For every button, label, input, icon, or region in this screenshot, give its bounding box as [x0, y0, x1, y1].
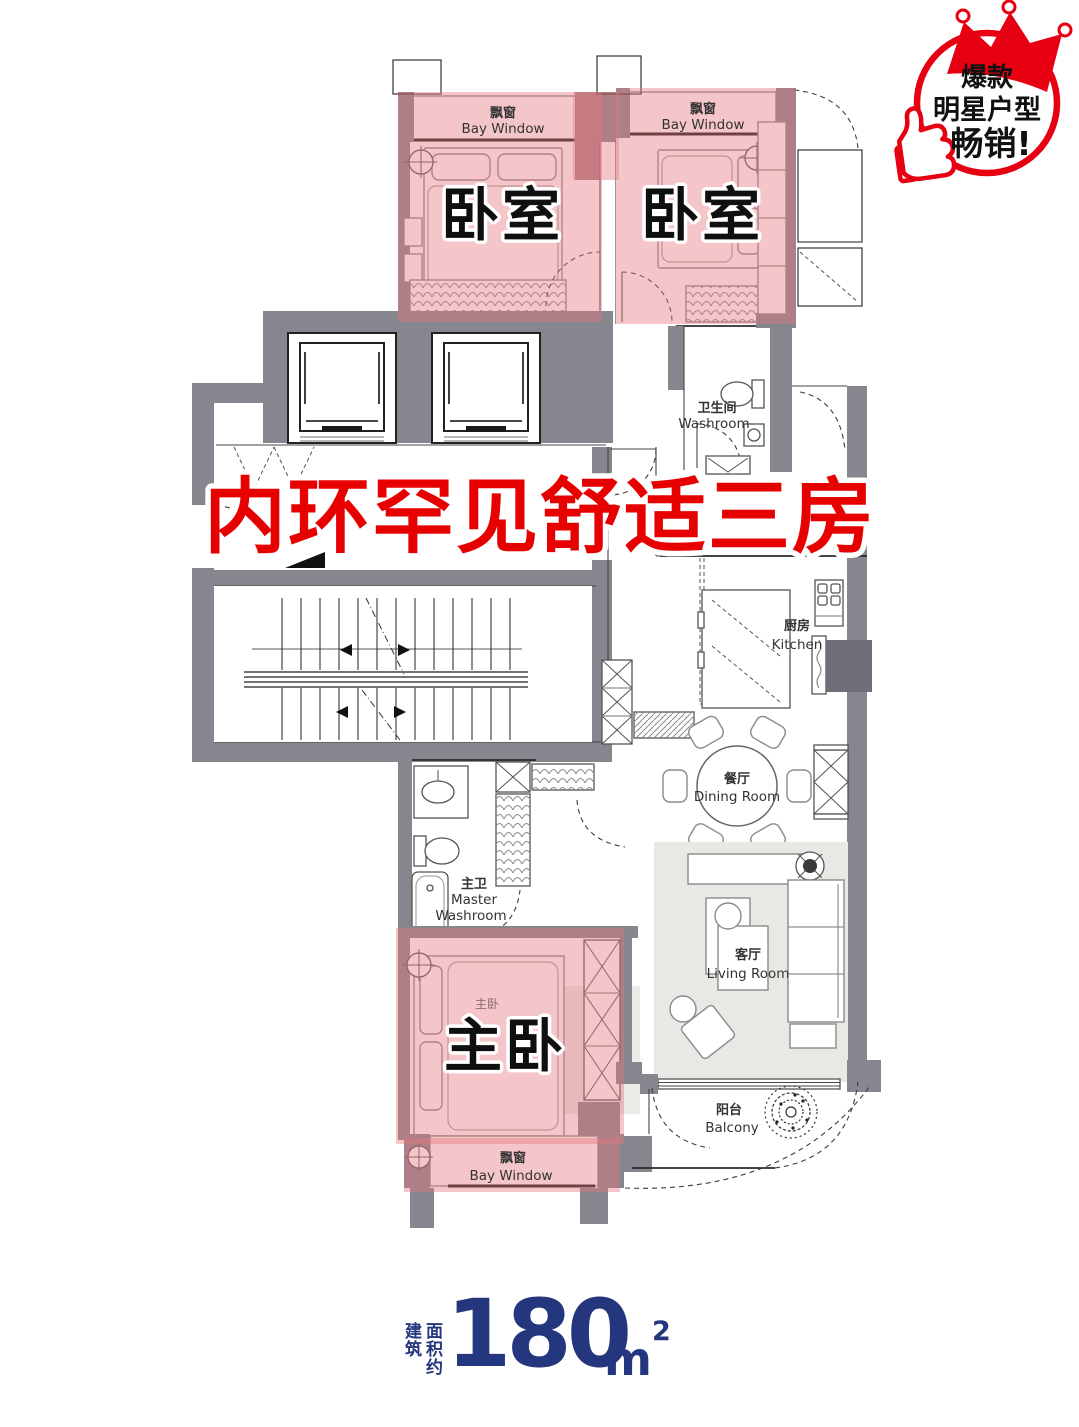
master-washroom-label-cn: 主卫 — [461, 876, 487, 892]
balcony-label-en: Balcony — [705, 1120, 759, 1136]
dining-room-label-en: Dining Room — [694, 789, 780, 805]
bedroom-right-title: 卧室 — [641, 181, 763, 249]
stove-icon — [815, 580, 843, 626]
dining-room-label-cn: 餐厅 — [723, 771, 750, 787]
bay-window-top-right-label-en: Bay Window — [661, 117, 744, 133]
bedroom-left-title: 卧室 — [441, 181, 563, 249]
master-washroom-label-en2: Washroom — [435, 908, 506, 924]
bay-window-bottom-label-cn: 飘窗 — [500, 1150, 526, 1166]
sideboard-icon — [814, 745, 848, 819]
stairs-icon — [214, 586, 592, 742]
badge-line3: 畅销! — [950, 124, 1031, 163]
master-bedroom-plan-label: 主卧 — [475, 997, 499, 1011]
washroom-label-en: Washroom — [678, 416, 749, 432]
tv-bench-icon — [688, 854, 804, 884]
master-bedroom-title: 主卧 — [444, 1012, 566, 1080]
elevator-2-icon — [432, 333, 540, 443]
bay-window-top-left-label-en: Bay Window — [461, 121, 544, 137]
plant-icon — [796, 852, 824, 880]
shoe-cabinet-icon — [602, 660, 632, 744]
living-room-label-en: Living Room — [707, 966, 790, 982]
balcony-label-cn: 阳台 — [716, 1102, 742, 1118]
elevator-1-icon — [288, 333, 396, 443]
coat-mat-icon — [634, 712, 694, 738]
bay-window-top-right-label-cn: 飘窗 — [690, 101, 716, 117]
bay-window-top-left-label-cn: 飘窗 — [490, 105, 516, 121]
headline-text: 内环罕见舒适三房 — [204, 470, 876, 565]
area-unit: m — [604, 1332, 652, 1386]
bay-window-bottom-label-en: Bay Window — [469, 1168, 552, 1184]
vanity-icon — [414, 766, 468, 818]
master-washroom-label-en1: Master — [451, 892, 498, 908]
area-prefix-col2: 面积约 — [423, 1322, 441, 1376]
floor-plan: 飘窗 Bay Window 飘窗 Bay Window 卫生间 Washroom… — [0, 0, 1079, 1423]
area-prefix-col1: 建筑 — [402, 1322, 420, 1376]
area-unit-exponent: 2 — [652, 1316, 671, 1347]
kitchen-label-en: Kitchen — [772, 637, 823, 653]
washroom-label-cn: 卫生间 — [697, 400, 736, 416]
badge-line1: 爆款 — [961, 63, 1014, 93]
sliding-door-icon — [658, 1079, 840, 1089]
badge-line2: 明星户型 — [933, 94, 1041, 126]
area-value: 180 — [446, 1292, 627, 1378]
kitchen-label-cn: 厨房 — [784, 618, 810, 634]
toilet-icon — [414, 836, 459, 866]
area-figure: 建筑 面积约 180 m 2 — [398, 1292, 728, 1412]
living-room-label-cn: 客厅 — [735, 947, 761, 963]
